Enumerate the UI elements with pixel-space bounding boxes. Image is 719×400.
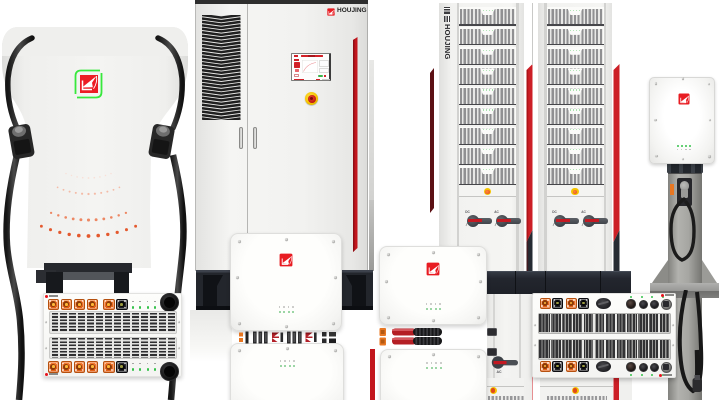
svg-text:AC: AC <box>496 370 502 374</box>
